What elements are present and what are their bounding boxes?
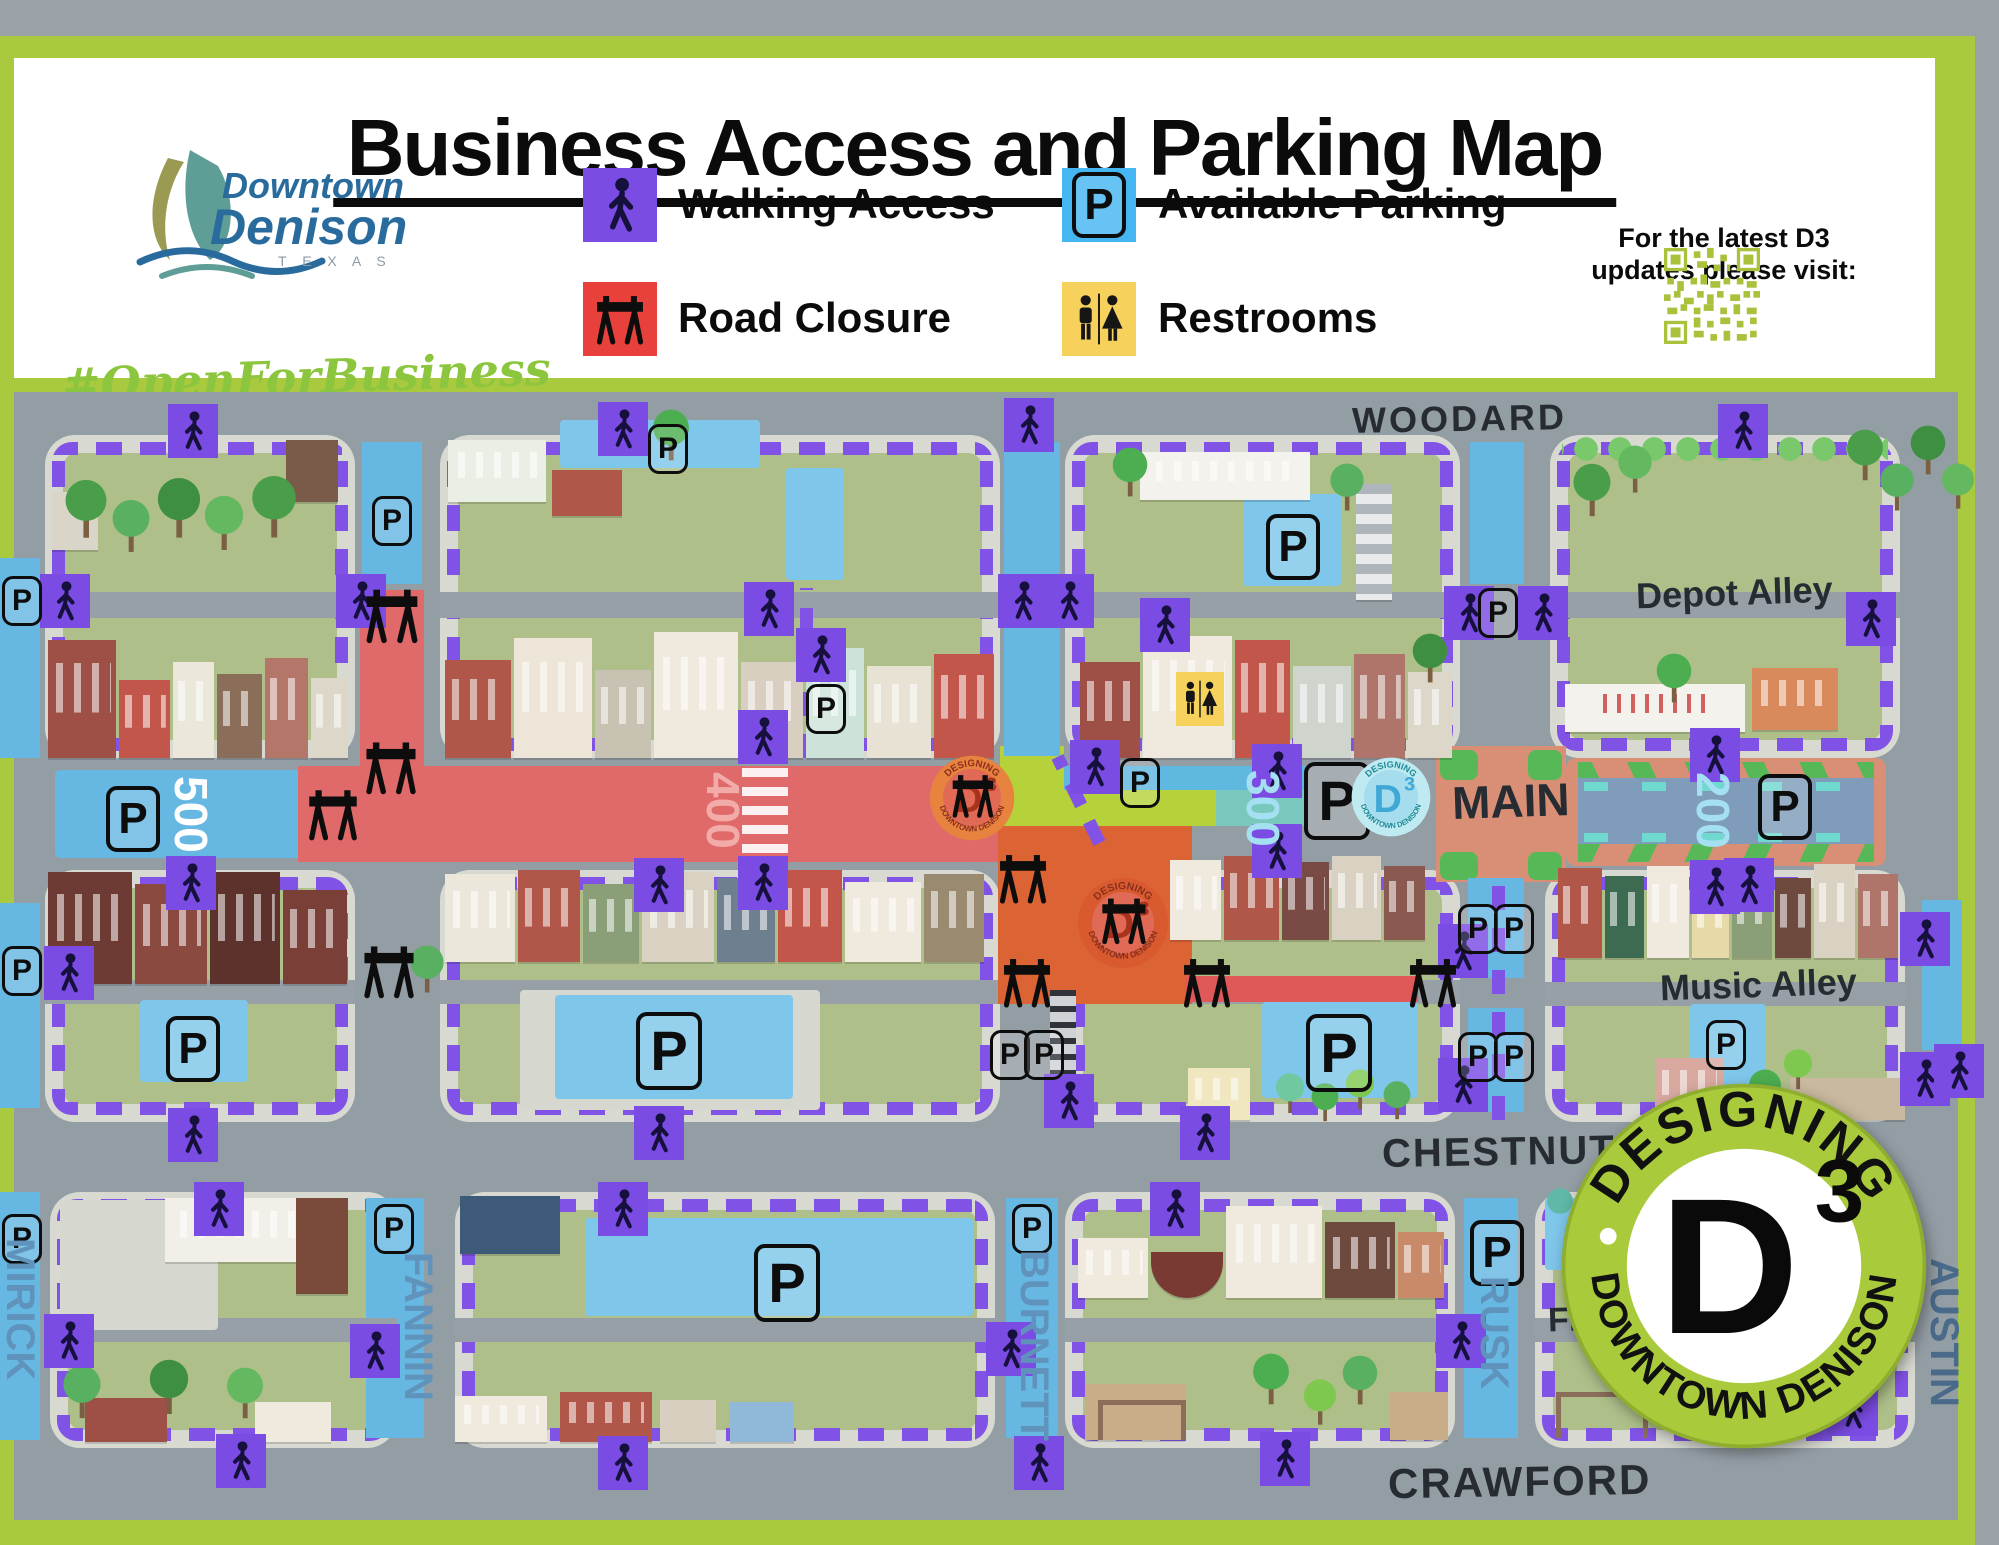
playground-frame: [1098, 1400, 1186, 1405]
walking-access-icon: [194, 1182, 244, 1236]
street-label-mirick: MIRICK: [0, 1238, 42, 1380]
walking-access-icon: [350, 1324, 400, 1378]
house: [660, 1400, 716, 1442]
building: [1384, 866, 1425, 940]
building: [217, 674, 262, 758]
walking-access-icon: [216, 1434, 266, 1488]
building: [1325, 1222, 1395, 1298]
parking-strip-rusk: [1470, 442, 1524, 584]
awning-building: [1151, 1252, 1223, 1298]
building: [514, 638, 592, 758]
walking-access-icon: [1718, 404, 1768, 458]
building: [934, 654, 994, 758]
building: [311, 678, 348, 758]
tree-icon: [1652, 652, 1696, 706]
intersection-green-pad: [1440, 852, 1478, 880]
walking-access-icon: [1004, 398, 1054, 452]
d3-parking-badge: DESIGNING DOWNTOWN DENISON D 3: [1350, 756, 1432, 838]
header-panel: Business Access and Parking Map Downtown…: [14, 58, 1935, 378]
walker-icon: [594, 176, 646, 234]
building: [654, 632, 738, 758]
parking-icon: P: [1024, 1030, 1064, 1080]
street-label-burnett: BURNETT: [1011, 1250, 1056, 1441]
building: [518, 870, 580, 962]
building: [1814, 864, 1856, 958]
walking-access-icon: [738, 856, 788, 910]
walking-access-icon: [1846, 592, 1896, 646]
playground-frame: [1181, 1400, 1186, 1440]
legend-walking-label: Walking Access: [678, 180, 995, 228]
walking-access-icon: [1044, 574, 1094, 628]
building: [445, 660, 511, 758]
parking-icon: P: [2, 946, 42, 996]
parking-icon: P: [754, 1244, 820, 1322]
tree-icon: [1938, 462, 1978, 512]
tree-icon: [222, 1366, 268, 1422]
walking-access-icon: [166, 856, 216, 910]
house: [560, 1392, 652, 1442]
tree-icon: [1614, 444, 1656, 496]
walking-access-icon: [1014, 1436, 1064, 1490]
parking-icon: P: [1478, 588, 1518, 638]
parking-icon: P: [636, 1012, 702, 1090]
walking-access-icon: [998, 574, 1048, 628]
storefront-row: [48, 640, 348, 758]
building: [173, 662, 214, 758]
building-row: [1078, 1190, 1452, 1298]
alley: [440, 592, 1000, 618]
intersection-green-pad: [1528, 852, 1562, 880]
walking-access-icon: [44, 1314, 94, 1368]
tree-icon: [60, 478, 112, 542]
parking-icon: P: [1494, 1032, 1534, 1082]
block-number-300: 300: [1236, 770, 1290, 847]
legend-restroom-swatch: [1062, 282, 1136, 356]
walking-access-icon: [598, 1182, 648, 1236]
tree-icon: [1326, 462, 1368, 514]
block-number-400: 400: [696, 772, 750, 849]
building: [460, 1196, 560, 1254]
tree-icon: [200, 494, 248, 554]
building: [1752, 668, 1838, 730]
downtown-denison-logo: Downtown Denison T E X A S: [110, 142, 420, 302]
road-closure-barricade-icon: [358, 936, 420, 1006]
tree-icon: [1408, 632, 1452, 686]
tree-icon: [1380, 1080, 1414, 1122]
page-right-margin: [1975, 36, 1999, 1545]
tree-icon: [1338, 1354, 1382, 1408]
building: [119, 680, 170, 758]
house: [1390, 1392, 1448, 1440]
walking-access-icon: [796, 628, 846, 682]
block-number-500: 500: [164, 776, 218, 853]
brand-texas: T E X A S: [278, 253, 392, 269]
walking-access-icon: [40, 574, 90, 628]
tree-icon: [1108, 446, 1152, 500]
legend-parking-swatch: P: [1062, 168, 1136, 242]
building: [1354, 654, 1406, 758]
alley: [1065, 592, 1460, 618]
alley: [45, 592, 355, 618]
alley: [455, 1318, 995, 1342]
parking-icon: P: [1012, 1204, 1052, 1254]
building: [1775, 878, 1811, 958]
walking-access-icon: [598, 1436, 648, 1490]
building: [210, 872, 280, 984]
restroom-icon: [1070, 290, 1128, 348]
building: [595, 670, 651, 758]
building: [1398, 1232, 1444, 1298]
road-closure-barricade-icon: [303, 772, 363, 856]
road-closure-barricade-icon: [1404, 948, 1462, 1016]
tree-icon: [144, 1358, 194, 1418]
walking-access-icon: [1044, 1074, 1094, 1128]
building: [1140, 452, 1310, 500]
parking-icon: P: [1706, 1020, 1746, 1070]
parking-icon: P: [106, 786, 160, 852]
walking-access-icon: [634, 1106, 684, 1160]
road-closure-barricade-icon: [998, 948, 1056, 1016]
building: [1226, 1206, 1322, 1298]
building: [924, 874, 984, 962]
building: [867, 666, 931, 758]
walking-access-icon: [1724, 858, 1774, 912]
storefront-row: [1080, 632, 1452, 758]
building: [48, 640, 116, 758]
restroom-icon: [1179, 677, 1221, 721]
road-closure-barricade-icon: [360, 578, 424, 652]
parking-strip-burnett: [1004, 442, 1060, 582]
parking-icon: P: [1758, 774, 1812, 840]
d3-closure-badge: DESIGNING DOWNTOWN DENISON D 3: [1076, 876, 1170, 970]
parking-icon: P: [166, 1016, 220, 1082]
parking-icon: P: [374, 1204, 414, 1254]
building: [583, 884, 639, 962]
parking-lot: [786, 468, 844, 580]
page-top-margin: [0, 0, 1999, 36]
walking-access-icon: [738, 710, 788, 764]
house: [455, 1396, 547, 1442]
tree-icon: [1272, 1072, 1308, 1116]
building: [283, 890, 347, 984]
tree-icon: [58, 1364, 106, 1422]
parking-icon: P: [1306, 1014, 1372, 1092]
building: [1558, 868, 1602, 958]
walking-access-icon: [168, 1108, 218, 1162]
walking-access-icon: [1518, 586, 1568, 640]
building: [445, 874, 515, 962]
street-label-main: MAIN: [1451, 772, 1570, 830]
parking-icon: P: [1266, 514, 1320, 580]
alley-label-music: Music Alley: [1659, 961, 1857, 1010]
road-closure-barricade-icon: [1178, 948, 1236, 1016]
restroom-marker: [1176, 672, 1224, 726]
street-label-rusk: RUSK: [1471, 1276, 1516, 1389]
legend-parking-label: Available Parking: [1158, 180, 1507, 228]
brand-denison: Denison: [210, 199, 407, 255]
street-label-woodard: WOODARD: [1352, 396, 1568, 442]
parking-icon: P: [2, 576, 42, 626]
d3-letter: D: [1374, 777, 1402, 821]
walking-access-icon: [1180, 1106, 1230, 1160]
road-closure-barricade-icon: [360, 732, 422, 802]
walking-access-icon: [1150, 1182, 1200, 1236]
playground-frame: [1098, 1400, 1103, 1440]
parking-icon: P: [1120, 758, 1160, 808]
building: [1235, 640, 1291, 758]
legend-walking-swatch: [583, 168, 657, 242]
road-closure-barricade-icon: [994, 844, 1052, 912]
parking-strip-mirick: [0, 903, 40, 1108]
d3-closure-badge: DESIGNING DOWNTOWN DENISON D 3: [928, 754, 1016, 842]
flyer-canvas: Business Access and Parking Map Downtown…: [0, 0, 1999, 1545]
walking-access-icon: [1900, 912, 1950, 966]
parking-icon: P: [806, 684, 846, 734]
street-label-crawford: CRAWFORD: [1388, 1456, 1652, 1509]
d3-three: 3: [1404, 773, 1415, 795]
building: [1605, 876, 1645, 958]
tree-icon: [108, 498, 154, 556]
block-number-200: 200: [1686, 772, 1740, 849]
walking-access-icon: [1140, 598, 1190, 652]
parking-icon: P: [648, 424, 688, 474]
tree-icon: [246, 474, 302, 542]
building: [265, 658, 308, 758]
qr-code: [1664, 248, 1760, 344]
building: [1647, 866, 1689, 958]
building: [1332, 856, 1381, 940]
walking-access-icon: [744, 582, 794, 636]
legend-closure-label: Road Closure: [678, 294, 951, 342]
building: [1170, 860, 1221, 940]
house: [730, 1402, 794, 1442]
building: [296, 1198, 348, 1294]
legend-closure-swatch: [583, 282, 657, 356]
parking-icon: P: [1072, 172, 1126, 238]
building: [448, 440, 546, 502]
tree-icon: [1568, 462, 1616, 520]
parking-icon: P: [1458, 904, 1498, 954]
parking-strip-burnett: [1004, 618, 1060, 756]
street-label-fannin: FANNIN: [395, 1252, 440, 1401]
d3-three: 3: [1815, 1140, 1865, 1240]
walking-access-icon: [1070, 740, 1120, 794]
walking-access-icon: [634, 858, 684, 912]
walking-access-icon: [1260, 1432, 1310, 1486]
walking-access-icon: [598, 402, 648, 456]
building: [845, 882, 921, 962]
tree-icon: [1248, 1352, 1294, 1408]
building: [552, 470, 622, 516]
parking-icon: P: [1458, 1032, 1498, 1082]
parking-icon: P: [1494, 904, 1534, 954]
barricade-icon: [591, 290, 649, 348]
walking-access-icon: [44, 946, 94, 1000]
tree-icon: [1300, 1378, 1340, 1428]
building: [1858, 874, 1898, 958]
storefront-row: [445, 630, 995, 758]
d3-letter: D: [1659, 1158, 1799, 1374]
alley-label-depot: Depot Alley: [1635, 569, 1833, 618]
building: [1078, 1238, 1148, 1298]
d3-designing-downtown-denison-logo: DESIGNING DOWNTOWN DENISON D 3: [1558, 1080, 1930, 1452]
parking-icon: P: [372, 496, 412, 546]
alley: [1065, 1318, 1455, 1342]
legend-restrooms-label: Restrooms: [1158, 294, 1377, 342]
storefront-row: [445, 870, 995, 962]
tree-icon: [152, 476, 206, 542]
walking-access-icon: [1934, 1044, 1984, 1098]
walking-access-icon: [168, 404, 218, 458]
